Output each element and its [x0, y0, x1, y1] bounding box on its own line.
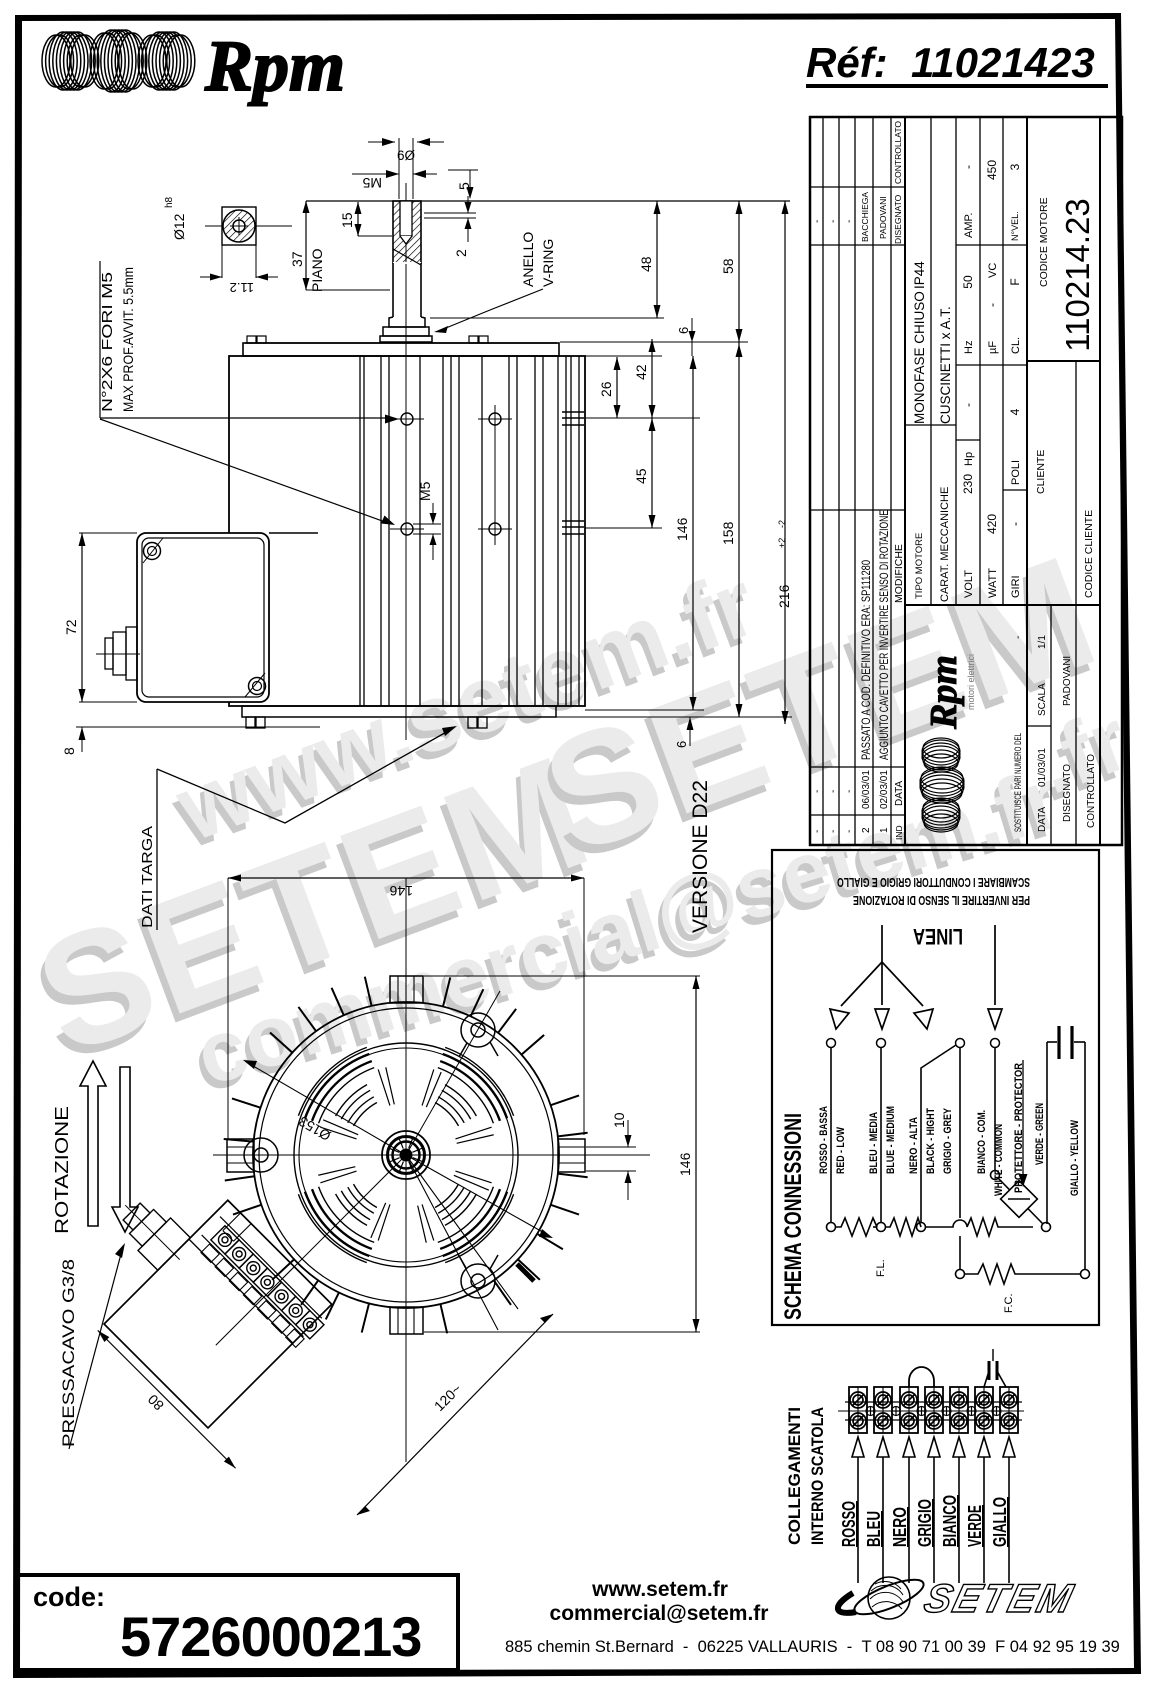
svg-text:72: 72: [63, 619, 79, 635]
svg-text:CODICE CLIENTE: CODICE CLIENTE: [1083, 510, 1095, 598]
svg-text:MONOFASE CHIUSO: MONOFASE CHIUSO: [912, 291, 927, 424]
svg-text:VERDE: VERDE: [965, 1505, 985, 1547]
svg-text:F.C.: F.C.: [1003, 1293, 1015, 1313]
svg-text:230: 230: [961, 474, 975, 494]
svg-text:h8: h8: [164, 196, 175, 208]
svg-text:450: 450: [985, 160, 999, 180]
svg-text:-: -: [828, 830, 839, 833]
svg-text:5726000213: 5726000213: [120, 1605, 421, 1668]
svg-text:4: 4: [1008, 408, 1022, 415]
svg-text:-: -: [961, 403, 975, 407]
svg-text:motori elettrici: motori elettrici: [966, 654, 976, 710]
svg-text:-: -: [812, 830, 823, 833]
svg-text:SOSTITUISCE PARI NUMERO DEL: SOSTITUISCE PARI NUMERO DEL: [1013, 733, 1024, 832]
svg-text:TIPO MOTORE: TIPO MOTORE: [914, 533, 925, 599]
svg-text:GIRI: GIRI: [1010, 575, 1022, 598]
svg-text:216: 216: [776, 584, 792, 608]
svg-text:GIALLO: GIALLO: [990, 1497, 1010, 1547]
svg-text:VERDE - GREEN: VERDE - GREEN: [1034, 1103, 1046, 1165]
svg-text:-: -: [844, 830, 855, 833]
svg-text:6: 6: [676, 327, 691, 334]
svg-text:PIANO: PIANO: [309, 248, 325, 292]
svg-text:48: 48: [638, 256, 654, 272]
svg-text:GRIGIO - GREY: GRIGIO - GREY: [942, 1107, 954, 1174]
svg-text:-: -: [828, 790, 839, 793]
svg-text:420: 420: [985, 514, 999, 534]
svg-text:-: -: [1008, 522, 1022, 526]
svg-text:CARAT. MECCANICHE: CARAT. MECCANICHE: [939, 487, 951, 602]
svg-text:SCALA: SCALA: [1037, 683, 1048, 716]
svg-text:WHITE - COMMON: WHITE - COMMON: [993, 1124, 1005, 1196]
svg-text:DISEGNATO: DISEGNATO: [1062, 764, 1073, 822]
svg-text:MODIFICHE: MODIFICHE: [893, 544, 905, 603]
svg-text:CONTROLLATO: CONTROLLATO: [1086, 754, 1097, 828]
svg-text:AGGIUNTO CAVETTO PER INVERTIRE: AGGIUNTO CAVETTO PER INVERTIRE SENSO DI …: [877, 510, 891, 760]
svg-text:42: 42: [633, 364, 649, 380]
svg-text:CODICE MOTORE: CODICE MOTORE: [1038, 197, 1050, 287]
svg-text:Rpm: Rpm: [923, 655, 965, 730]
svg-text:WATT: WATT: [987, 568, 999, 598]
svg-text:ROSSO: ROSSO: [839, 1501, 859, 1547]
svg-text:F: F: [1008, 278, 1022, 285]
svg-text:45: 45: [633, 468, 649, 484]
svg-text:ANELLO: ANELLO: [520, 232, 536, 287]
svg-text:V-RING: V-RING: [540, 239, 556, 287]
svg-text:CUSCINETTI x A.T.: CUSCINETTI x A.T.: [938, 306, 953, 424]
svg-text:Hz: Hz: [963, 341, 975, 354]
svg-text:885 chemin St.Bernard - 0622: 885 chemin St.Bernard - 06225 VALLAURIS …: [505, 1638, 1120, 1656]
svg-text:LINEA: LINEA: [913, 924, 963, 949]
svg-text:50: 50: [961, 275, 975, 289]
svg-text:N°VEL.: N°VEL.: [1010, 211, 1020, 241]
svg-text:BLEU: BLEU: [864, 1511, 884, 1547]
svg-text:CLIENTE: CLIENTE: [1035, 450, 1047, 494]
svg-text:-: -: [828, 220, 839, 223]
svg-text:37: 37: [289, 251, 305, 267]
svg-text:Réf: 11021423: Réf: 11021423: [806, 39, 1095, 86]
svg-text:Hp: Hp: [963, 452, 975, 466]
svg-text:MAX PROF.AVVIT. 5.5mm: MAX PROF.AVVIT. 5.5mm: [121, 267, 136, 412]
svg-text:CL.: CL.: [1010, 337, 1022, 354]
svg-text:158: 158: [720, 521, 736, 545]
svg-text:POLI: POLI: [1010, 460, 1022, 485]
svg-text:VOLT: VOLT: [963, 570, 975, 598]
svg-text:M5: M5: [417, 481, 433, 501]
svg-text:15: 15: [339, 212, 355, 228]
svg-text:BLEU - MEDIA: BLEU - MEDIA: [868, 1112, 880, 1174]
svg-text:Rpm: Rpm: [204, 26, 345, 106]
svg-text:PRESSACAVO G3/8: PRESSACAVO G3/8: [59, 1259, 78, 1447]
svg-text:DATA: DATA: [1037, 806, 1048, 832]
svg-text:N°2X6 FORI M5: N°2X6 FORI M5: [99, 272, 116, 412]
svg-text:PADOVANI: PADOVANI: [1062, 656, 1073, 706]
svg-text:1: 1: [879, 827, 890, 833]
svg-text:DATI TARGA: DATI TARGA: [139, 826, 156, 928]
svg-text:INTERNO SCATOLA: INTERNO SCATOLA: [808, 1407, 827, 1545]
svg-text:ROTAZIONE: ROTAZIONE: [52, 1106, 72, 1234]
svg-text:146: 146: [389, 883, 413, 899]
svg-text:BIANCO: BIANCO: [940, 1495, 960, 1547]
svg-text:-: -: [985, 303, 999, 307]
svg-text:6: 6: [674, 741, 689, 748]
svg-text:146: 146: [677, 1152, 693, 1176]
svg-text:µF: µF: [987, 341, 999, 354]
svg-text:SCHEMA CONNESSIONI: SCHEMA CONNESSIONI: [780, 1113, 807, 1320]
svg-text:5: 5: [456, 182, 472, 190]
svg-text:11.2: 11.2: [230, 280, 254, 295]
svg-text:GRIGIO: GRIGIO: [915, 1499, 935, 1547]
svg-text:-: -: [844, 220, 855, 223]
svg-text:PROTETTORE - PROTECTOR: PROTETTORE - PROTECTOR: [1013, 1063, 1025, 1193]
svg-text:M5: M5: [362, 175, 382, 191]
svg-text:RED - LOW: RED - LOW: [835, 1127, 847, 1174]
svg-text:02/03/01: 02/03/01: [879, 770, 890, 809]
svg-text:-2: -2: [777, 520, 787, 528]
svg-text:+2: +2: [777, 538, 787, 548]
svg-text:BIANCO - COM.: BIANCO - COM.: [976, 1110, 988, 1174]
svg-text:www.setem.fr: www.setem.fr: [591, 1578, 728, 1601]
svg-text:F.L.: F.L.: [875, 1259, 887, 1277]
svg-text:BACCHIEGA: BACCHIEGA: [860, 192, 870, 242]
svg-text:PER INVERTIRE IL SENSO DI ROTA: PER INVERTIRE IL SENSO DI ROTAZIONE: [853, 893, 1030, 908]
svg-text:146: 146: [674, 517, 690, 541]
svg-text:VERSIONE D22: VERSIONE D22: [689, 780, 712, 933]
svg-text:Ø12: Ø12: [171, 213, 187, 240]
svg-text:110214.23: 110214.23: [1059, 198, 1096, 352]
svg-text:GIALLO - YELLOW: GIALLO - YELLOW: [1069, 1120, 1081, 1196]
svg-text:10: 10: [611, 1112, 627, 1128]
svg-text:BLACK - HIGHT: BLACK - HIGHT: [925, 1108, 937, 1174]
svg-text:2: 2: [861, 827, 872, 833]
svg-text:-: -: [1013, 636, 1024, 639]
svg-text:IND: IND: [894, 825, 904, 840]
svg-text:IP44: IP44: [912, 261, 927, 289]
svg-text:CONTROLLATO: CONTROLLATO: [893, 121, 903, 184]
svg-text:SCAMBIARE I CONDUTTORI GRIGIO: SCAMBIARE I CONDUTTORI GRIGIO E GIALLO: [837, 875, 1030, 890]
svg-text:DISEGNATO: DISEGNATO: [893, 194, 903, 244]
svg-text:SETEM: SETEM: [920, 1576, 1079, 1621]
svg-text:VC: VC: [987, 263, 999, 278]
svg-text:BLUE - MEDIUM: BLUE - MEDIUM: [885, 1106, 897, 1174]
svg-text:1/1: 1/1: [1037, 635, 1048, 649]
svg-text:01/03/01: 01/03/01: [1037, 748, 1048, 787]
svg-text:PADOVANI: PADOVANI: [878, 196, 888, 239]
svg-text:-: -: [844, 790, 855, 793]
svg-text:6Ø: 6Ø: [397, 148, 416, 163]
svg-text:NERO - ALTA: NERO - ALTA: [908, 1117, 920, 1174]
svg-text:code:: code:: [33, 1582, 105, 1612]
svg-text:26: 26: [598, 381, 614, 397]
svg-text:AMP.: AMP.: [963, 213, 975, 238]
svg-text:2: 2: [453, 249, 469, 257]
svg-text:58: 58: [720, 258, 736, 274]
svg-text:ROSSO - BASSA: ROSSO - BASSA: [818, 1106, 830, 1174]
svg-text:-: -: [961, 165, 975, 169]
svg-text:COLLEGAMENTI: COLLEGAMENTI: [785, 1407, 804, 1545]
svg-text:commercial@setem.fr: commercial@setem.fr: [550, 1602, 769, 1625]
svg-text:8: 8: [61, 747, 77, 755]
svg-text:NERO: NERO: [890, 1507, 910, 1547]
svg-text:PASSATO A COD. DEFINITIVO ERA:: PASSATO A COD. DEFINITIVO ERA: SP111280: [859, 560, 873, 760]
svg-text:DATA: DATA: [894, 780, 905, 806]
svg-text:-: -: [812, 790, 823, 793]
svg-text:3: 3: [1008, 163, 1022, 170]
svg-text:-: -: [812, 220, 823, 223]
svg-text:06/03/01: 06/03/01: [861, 770, 872, 809]
